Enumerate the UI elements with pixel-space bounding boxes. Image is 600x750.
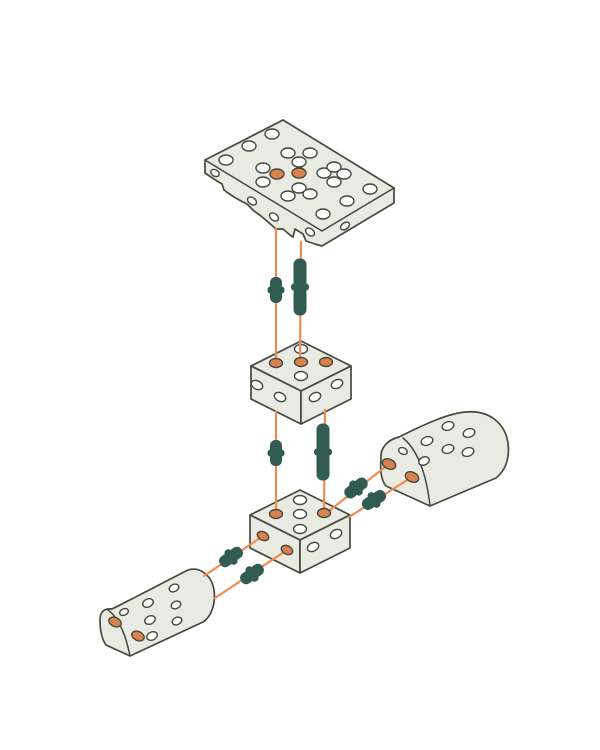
- accent-hole: [270, 359, 283, 368]
- left-half-cylinder-body: [100, 569, 214, 656]
- hole: [265, 129, 279, 139]
- accent-hole: [320, 358, 333, 367]
- accent-hole: [270, 169, 284, 179]
- hole: [295, 372, 308, 381]
- hole: [292, 157, 306, 167]
- short-pin: [236, 560, 267, 589]
- hole: [363, 184, 377, 194]
- short-pin: [268, 440, 285, 466]
- accent-hole: [295, 358, 308, 367]
- long-pin: [314, 424, 332, 481]
- hole: [316, 209, 330, 219]
- hole: [294, 525, 307, 534]
- short-pin: [215, 543, 246, 572]
- hole: [281, 191, 295, 201]
- assembly-diagram-page: Isometric exploded-view diagram of five …: [0, 0, 600, 750]
- hole: [303, 148, 317, 158]
- short-pin: [358, 486, 389, 514]
- long-pin: [291, 259, 309, 316]
- hole: [256, 163, 270, 173]
- hole: [337, 169, 351, 179]
- assembly-diagram: Isometric exploded-view diagram of five …: [0, 0, 600, 750]
- short-pin: [268, 277, 285, 303]
- hole: [327, 177, 341, 187]
- accent-hole: [270, 510, 283, 519]
- accent-hole: [292, 168, 306, 178]
- right-half-cylinder: [381, 412, 509, 506]
- hole: [303, 189, 317, 199]
- hole: [281, 148, 295, 158]
- hole: [294, 496, 307, 505]
- bottom-block: [250, 490, 350, 573]
- hole: [340, 196, 354, 206]
- hole: [294, 510, 307, 519]
- hole: [219, 155, 233, 165]
- left-half-cylinder: [100, 569, 214, 656]
- accent-hole: [318, 509, 331, 518]
- top-plate: [205, 120, 394, 246]
- hole: [242, 141, 256, 151]
- hole: [256, 177, 270, 187]
